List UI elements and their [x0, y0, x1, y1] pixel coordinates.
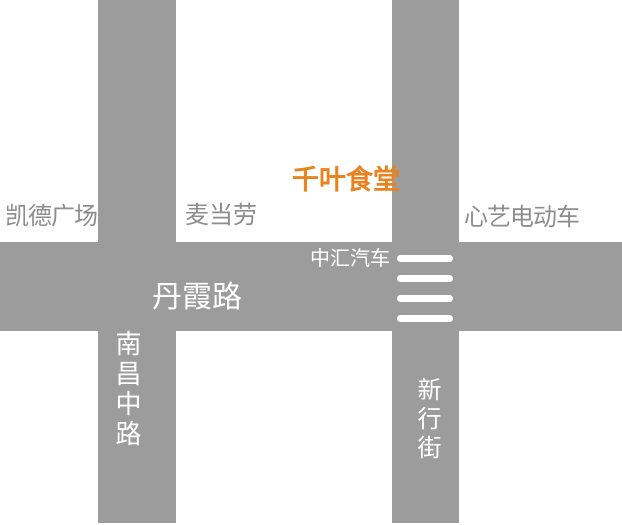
place-label-xinyi-ebike: 心艺电动车 [464, 206, 579, 230]
place-label-zhonghui-auto: 中汇汽车 [310, 249, 390, 269]
map-canvas: 丹霞路 南昌中路 新行街 凯德广场 麦当劳 千叶食堂 心艺电动车 中汇汽车 [0, 0, 622, 525]
road-label-xinxing: 新行街 [414, 377, 438, 464]
place-label-mcdonalds: 麦当劳 [185, 204, 257, 228]
road-label-danxia: 丹霞路 [152, 283, 242, 313]
place-label-kaide-plaza: 凯德广场 [5, 205, 97, 229]
crosswalk-dash [397, 315, 453, 322]
place-label-qianye-canteen: 千叶食堂 [292, 167, 400, 194]
crosswalk-dash [397, 275, 453, 282]
crosswalk-dash [397, 255, 453, 262]
road-label-nanchang: 南昌中路 [114, 330, 140, 450]
crosswalk-dash [397, 295, 453, 302]
crosswalk [397, 255, 453, 322]
